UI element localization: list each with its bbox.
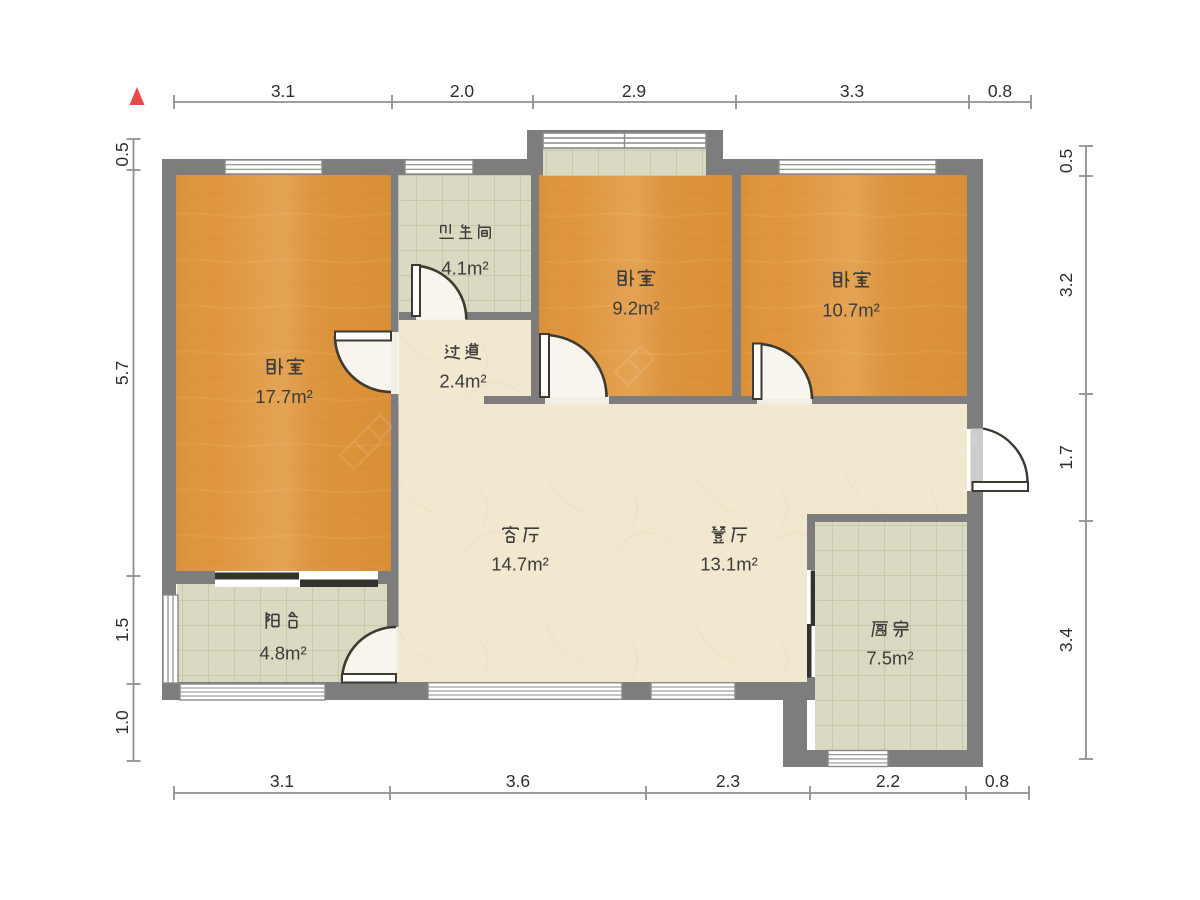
svg-text:2.2: 2.2 bbox=[876, 771, 900, 791]
svg-text:1.5: 1.5 bbox=[112, 618, 132, 642]
svg-text:5.7: 5.7 bbox=[112, 361, 132, 385]
svg-text:2.3: 2.3 bbox=[716, 771, 740, 791]
svg-text:3.6: 3.6 bbox=[506, 771, 530, 791]
svg-text:3.2: 3.2 bbox=[1056, 273, 1076, 297]
svg-text:13.1m²: 13.1m² bbox=[700, 554, 758, 575]
svg-text:0.8: 0.8 bbox=[988, 81, 1012, 101]
svg-text:3.1: 3.1 bbox=[270, 771, 294, 791]
svg-text:4.8m²: 4.8m² bbox=[259, 643, 306, 664]
svg-text:9.2m²: 9.2m² bbox=[612, 298, 659, 319]
svg-text:0.5: 0.5 bbox=[112, 142, 132, 166]
svg-text:0.5: 0.5 bbox=[1056, 149, 1076, 173]
svg-text:4.1m²: 4.1m² bbox=[441, 258, 488, 279]
svg-text:0.8: 0.8 bbox=[985, 771, 1009, 791]
svg-text:7.5m²: 7.5m² bbox=[866, 648, 913, 669]
svg-text:17.7m²: 17.7m² bbox=[255, 386, 313, 407]
svg-text:3.1: 3.1 bbox=[271, 81, 295, 101]
svg-text:14.7m²: 14.7m² bbox=[491, 554, 549, 575]
svg-text:2.4m²: 2.4m² bbox=[439, 371, 486, 392]
svg-text:10.7m²: 10.7m² bbox=[822, 300, 880, 321]
svg-text:3.4: 3.4 bbox=[1056, 628, 1076, 653]
svg-text:1.7: 1.7 bbox=[1056, 445, 1076, 469]
svg-text:1.0: 1.0 bbox=[112, 710, 132, 735]
svg-text:3.3: 3.3 bbox=[840, 81, 864, 101]
svg-text:2.0: 2.0 bbox=[450, 81, 475, 101]
svg-text:2.9: 2.9 bbox=[622, 81, 646, 101]
